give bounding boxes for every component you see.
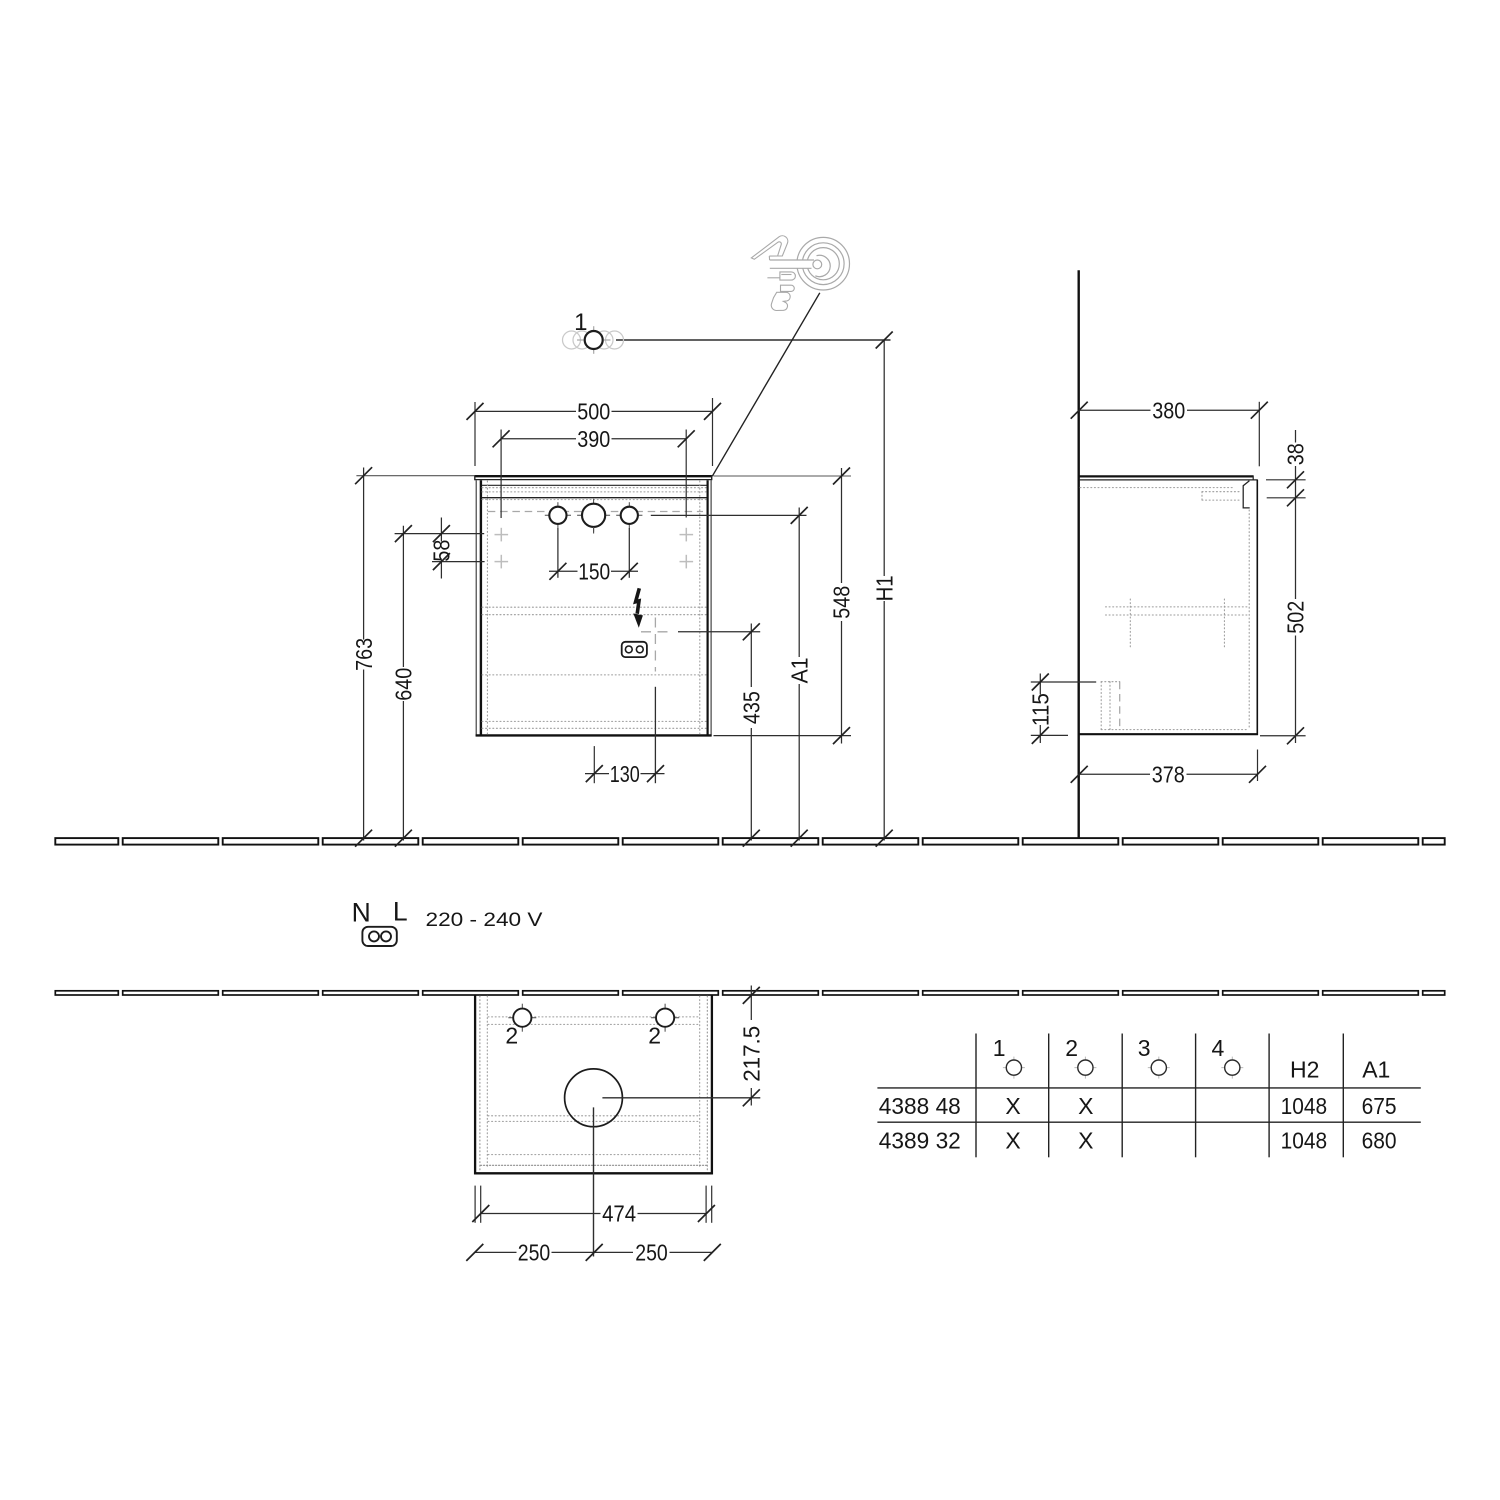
svg-text:115: 115	[1028, 693, 1054, 726]
svg-text:217.5: 217.5	[738, 1026, 764, 1082]
svg-text:640: 640	[391, 668, 417, 701]
svg-text:38: 38	[1283, 443, 1309, 465]
svg-text:500: 500	[577, 399, 610, 425]
svg-text:675: 675	[1362, 1093, 1397, 1119]
svg-text:220 - 240 V: 220 - 240 V	[426, 909, 543, 931]
svg-text:474: 474	[602, 1201, 636, 1227]
svg-text:N: N	[352, 897, 371, 927]
svg-text:548: 548	[829, 586, 855, 619]
svg-text:3: 3	[1138, 1035, 1151, 1061]
svg-text:763: 763	[351, 638, 377, 671]
svg-text:1048: 1048	[1281, 1093, 1328, 1119]
svg-text:X: X	[1078, 1127, 1093, 1153]
svg-text:A1: A1	[786, 657, 812, 683]
svg-text:58: 58	[429, 540, 455, 562]
svg-text:1: 1	[574, 309, 587, 336]
svg-text:250: 250	[518, 1240, 551, 1266]
svg-text:250: 250	[635, 1240, 668, 1266]
svg-text:4: 4	[1212, 1035, 1225, 1061]
svg-text:H2: H2	[1290, 1056, 1319, 1082]
svg-text:1: 1	[993, 1035, 1006, 1061]
svg-text:502: 502	[1283, 601, 1309, 634]
svg-text:1048: 1048	[1281, 1127, 1328, 1153]
svg-text:378: 378	[1152, 762, 1185, 788]
svg-text:L: L	[393, 897, 408, 927]
svg-text:380: 380	[1152, 397, 1185, 423]
svg-text:2: 2	[648, 1023, 661, 1049]
svg-text:2: 2	[505, 1023, 518, 1049]
svg-text:130: 130	[610, 761, 640, 787]
svg-text:X: X	[1078, 1093, 1093, 1119]
svg-text:H1: H1	[871, 575, 897, 601]
svg-text:390: 390	[577, 426, 610, 452]
svg-text:X: X	[1005, 1127, 1020, 1153]
svg-text:4389 32: 4389 32	[879, 1127, 961, 1153]
svg-text:A1: A1	[1362, 1056, 1390, 1082]
svg-text:X: X	[1005, 1093, 1020, 1119]
svg-text:680: 680	[1362, 1127, 1397, 1153]
svg-text:150: 150	[578, 559, 610, 585]
svg-text:2: 2	[1065, 1035, 1078, 1061]
svg-text:435: 435	[739, 691, 765, 724]
svg-text:4388 48: 4388 48	[879, 1093, 961, 1119]
